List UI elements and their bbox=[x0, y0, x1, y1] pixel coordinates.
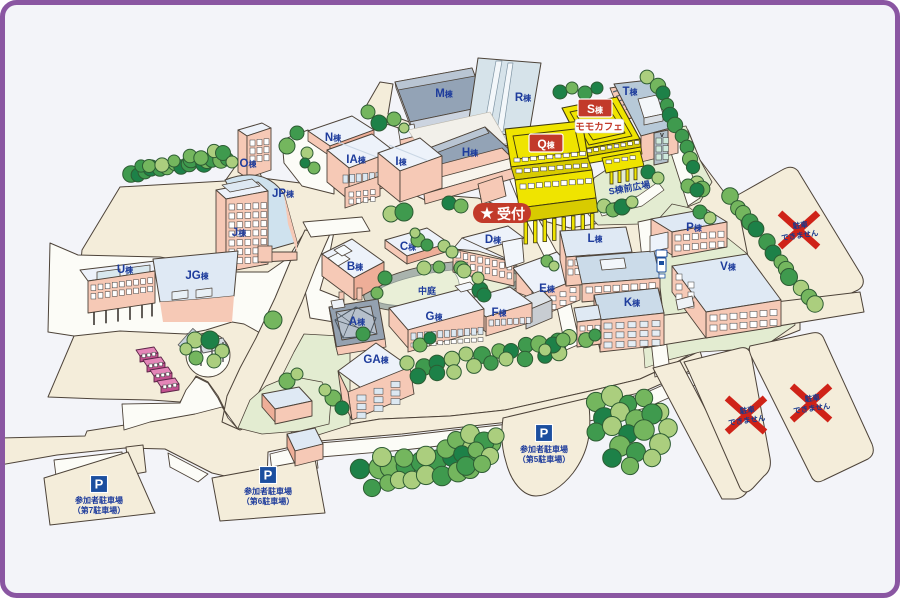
svg-text:受付: 受付 bbox=[497, 206, 525, 222]
svg-text:U棟: U棟 bbox=[117, 264, 134, 276]
svg-text:F棟: F棟 bbox=[491, 307, 507, 319]
svg-text:IA棟: IA棟 bbox=[346, 154, 367, 166]
svg-text:A棟: A棟 bbox=[349, 316, 366, 328]
svg-text:中庭: 中庭 bbox=[418, 285, 437, 296]
svg-text:K棟: K棟 bbox=[624, 297, 641, 309]
svg-text:G棟: G棟 bbox=[426, 311, 444, 323]
svg-text:H棟: H棟 bbox=[462, 147, 479, 159]
svg-text:D棟: D棟 bbox=[485, 234, 502, 246]
svg-text:P: P bbox=[540, 426, 549, 441]
svg-text:O棟: O棟 bbox=[240, 158, 258, 170]
svg-text:★: ★ bbox=[479, 204, 494, 223]
svg-text:モモカフェ: モモカフェ bbox=[575, 122, 623, 133]
svg-text:M棟: M棟 bbox=[435, 88, 454, 100]
svg-text:I棟: I棟 bbox=[395, 156, 407, 168]
svg-text:v: v bbox=[660, 132, 664, 139]
svg-text:R棟: R棟 bbox=[515, 92, 532, 104]
svg-text:JG棟: JG棟 bbox=[185, 270, 209, 282]
svg-text:（第7駐車場）: （第7駐車場） bbox=[73, 505, 125, 515]
svg-text:P: P bbox=[264, 468, 273, 483]
svg-text:GA棟: GA棟 bbox=[363, 354, 389, 366]
svg-text:L棟: L棟 bbox=[587, 233, 603, 245]
svg-text:（第5駐車場）: （第5駐車場） bbox=[518, 454, 570, 464]
svg-text:P: P bbox=[95, 477, 104, 492]
svg-text:P棟: P棟 bbox=[686, 222, 703, 234]
svg-text:B棟: B棟 bbox=[347, 261, 364, 273]
svg-text:（第6駐車場）: （第6駐車場） bbox=[242, 496, 294, 506]
svg-text:JP棟: JP棟 bbox=[272, 188, 295, 200]
svg-text:参加者駐車場: 参加者駐車場 bbox=[74, 495, 123, 505]
svg-text:V棟: V棟 bbox=[720, 261, 737, 273]
svg-text:J棟: J棟 bbox=[232, 227, 247, 239]
svg-text:E棟: E棟 bbox=[539, 283, 556, 295]
svg-text:参加者駐車場: 参加者駐車場 bbox=[519, 444, 568, 454]
svg-text:T棟: T棟 bbox=[622, 86, 638, 98]
svg-text:参加者駐車場: 参加者駐車場 bbox=[243, 486, 292, 496]
